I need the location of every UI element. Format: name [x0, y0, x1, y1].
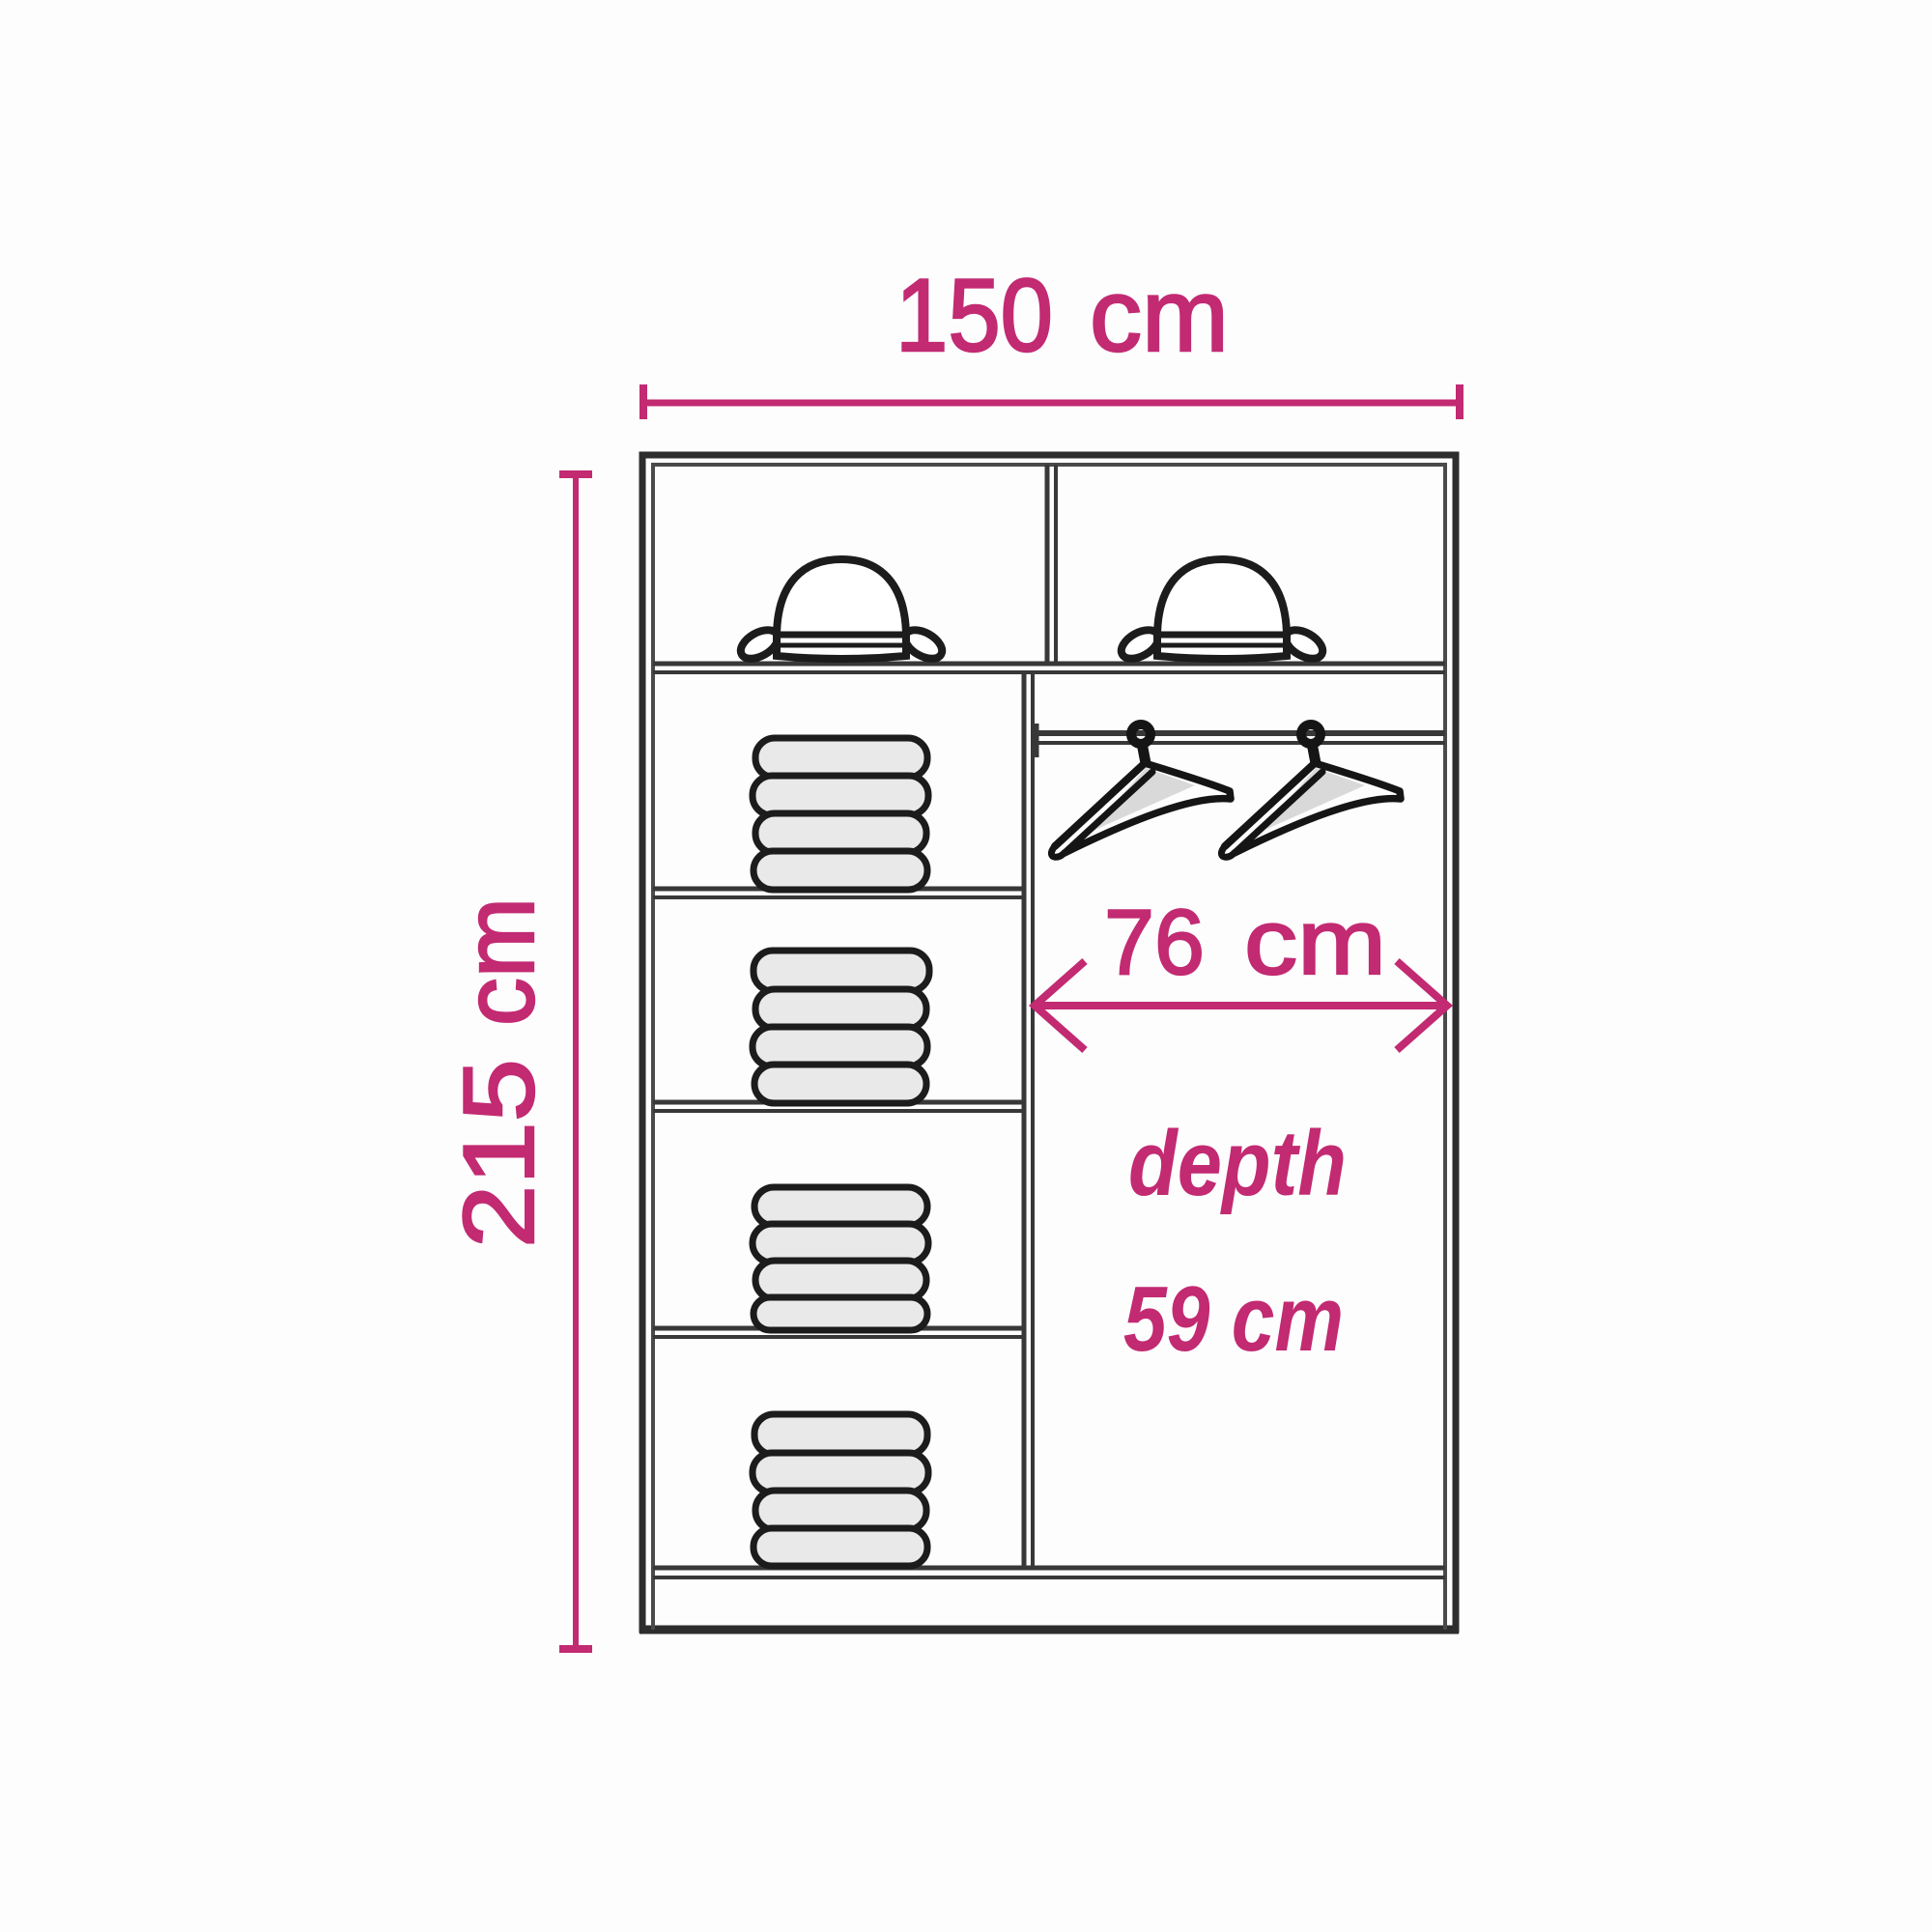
- svg-text:215: 215: [443, 1059, 555, 1248]
- svg-text:cm: cm: [1244, 891, 1386, 994]
- svg-text:59 cm: 59 cm: [1123, 1267, 1344, 1371]
- svg-text:150: 150: [895, 257, 1053, 373]
- svg-text:76: 76: [1104, 891, 1205, 994]
- svg-text:depth: depth: [1128, 1112, 1347, 1215]
- svg-text:cm: cm: [443, 897, 555, 1026]
- svg-text:cm: cm: [1090, 257, 1229, 373]
